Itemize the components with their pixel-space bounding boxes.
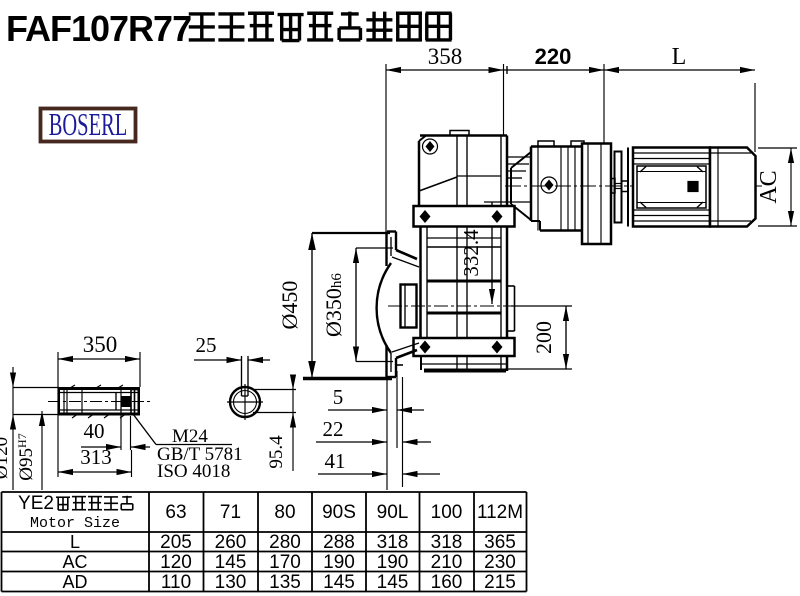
svg-text:120: 120 (160, 552, 192, 573)
svg-text:220: 220 (535, 44, 572, 69)
svg-text:210: 210 (431, 552, 463, 573)
svg-text:95.4: 95.4 (266, 435, 287, 469)
svg-text:358: 358 (428, 44, 463, 69)
svg-text:90L: 90L (377, 502, 409, 523)
svg-text:L: L (70, 532, 80, 552)
svg-text:Ø450: Ø450 (277, 281, 302, 330)
svg-text:FAF107R77: FAF107R77 (6, 8, 191, 49)
svg-text:BOSERL: BOSERL (49, 106, 128, 142)
svg-text:288: 288 (323, 532, 355, 553)
svg-text:130: 130 (215, 572, 247, 593)
svg-text:Ø120: Ø120 (0, 437, 12, 479)
svg-text:190: 190 (377, 552, 409, 573)
svg-text:71: 71 (220, 502, 241, 523)
svg-text:L: L (672, 44, 687, 70)
svg-text:170: 170 (269, 552, 301, 573)
svg-text:AC: AC (62, 552, 87, 572)
svg-text:25: 25 (196, 333, 217, 357)
svg-text:63: 63 (165, 502, 186, 523)
svg-text:YE2: YE2 (18, 493, 54, 514)
svg-text:350: 350 (83, 332, 118, 357)
svg-text:365: 365 (484, 532, 516, 553)
svg-text:22: 22 (323, 417, 344, 441)
svg-text:5: 5 (333, 385, 344, 409)
svg-text:100: 100 (431, 502, 463, 523)
svg-text:40: 40 (84, 419, 105, 443)
svg-text:215: 215 (484, 572, 516, 593)
svg-text:90S: 90S (322, 502, 356, 523)
svg-text:260: 260 (215, 532, 247, 553)
svg-text:AD: AD (62, 572, 87, 592)
svg-text:318: 318 (377, 532, 409, 553)
svg-text:230: 230 (484, 552, 516, 573)
svg-text:ISO 4018: ISO 4018 (157, 461, 230, 482)
svg-text:190: 190 (323, 552, 355, 573)
svg-text:Motor Size: Motor Size (30, 515, 120, 532)
svg-text:205: 205 (160, 532, 192, 553)
svg-text:318: 318 (431, 532, 463, 553)
svg-text:80: 80 (274, 502, 295, 523)
svg-text:110: 110 (161, 572, 191, 593)
svg-text:145: 145 (215, 552, 247, 573)
svg-text:332.4: 332.4 (459, 229, 483, 277)
svg-text:280: 280 (269, 532, 301, 553)
svg-text:160: 160 (431, 572, 463, 593)
svg-text:313: 313 (80, 445, 112, 469)
svg-text:145: 145 (323, 572, 355, 593)
svg-text:145: 145 (377, 572, 409, 593)
svg-text:AC: AC (756, 170, 782, 203)
svg-text:112M: 112M (477, 502, 523, 523)
svg-text:41: 41 (325, 449, 346, 473)
svg-text:135: 135 (269, 572, 301, 593)
svg-text:200: 200 (531, 321, 556, 354)
